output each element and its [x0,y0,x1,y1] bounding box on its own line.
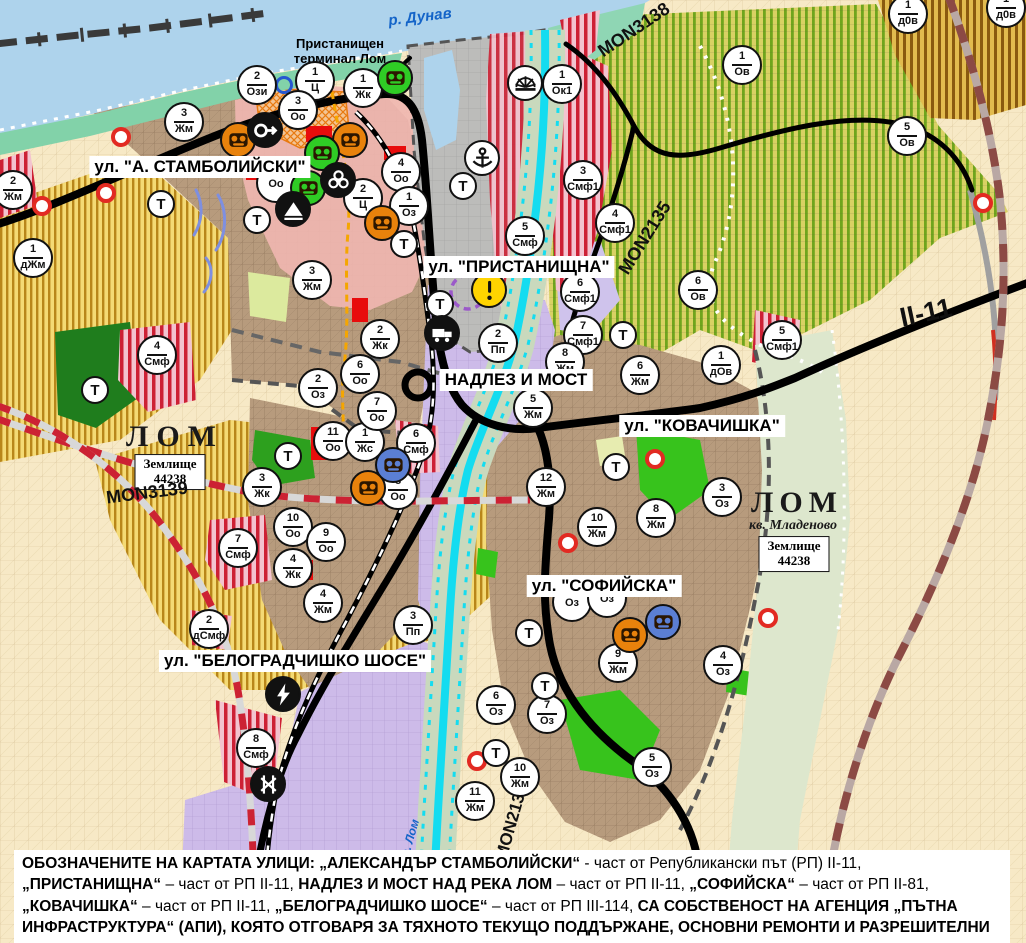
note-text-segment: – част от РП II-81, [795,876,929,893]
note-text-segment: „БЕЛОГРАДЧИШКО ШОСЕ“ [275,898,488,915]
note-text-segment: – част от РП II-11, [138,898,275,915]
note-text-segment: ОБОЗНАЧЕНИТЕ НА КАРТАТА УЛИЦИ: „АЛЕКСАНД… [22,855,580,872]
note-text-segment: НАДЛЕЗ И МОСТ НАД РЕКА ЛОМ [298,876,552,893]
note-text-segment: „СОФИЙСКА“ [689,876,795,893]
basemap-graphics [0,0,1026,943]
zoning-map-lom[interactable]: ул. "А. СТАМБОЛИЙСКИ"ул. "ПРИСТАНИЩНА"НА… [0,0,1026,943]
note-text-segment: „КОВАЧИШКА“ [22,898,138,915]
note-text-segment: - част от Републикански път (РП) II-11, [580,855,861,872]
map-legend-note: ОБОЗНАЧЕНИТЕ НА КАРТАТА УЛИЦИ: „АЛЕКСАНД… [14,850,1010,943]
note-text-segment: – част от РП III-114, [488,898,638,915]
note-text-segment: – част от РП II-11, [161,876,298,893]
note-text-segment: „ПРИСТАНИЩНА“ [22,876,161,893]
port-terminal-label: Пристанищентерминал Лом [294,37,386,67]
note-text-segment: – част от РП II-11, [552,876,689,893]
